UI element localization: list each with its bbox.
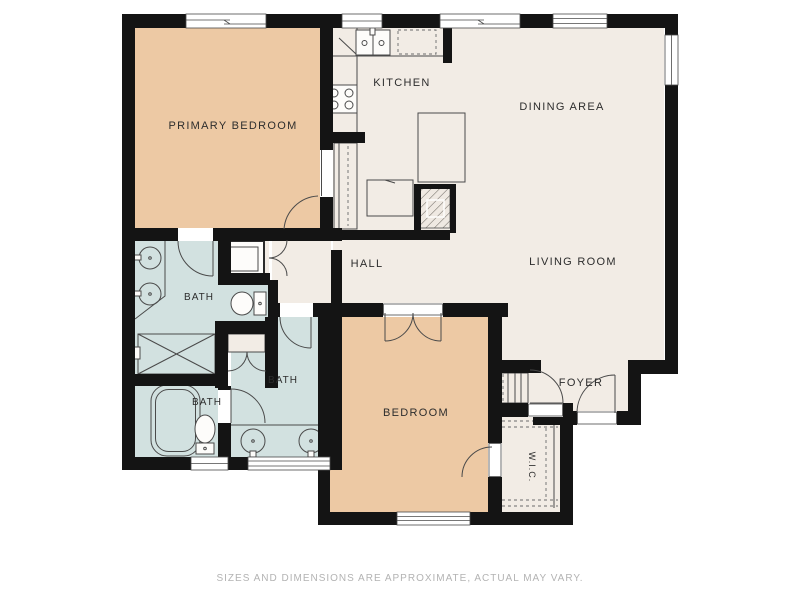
bath-small-label: BATH [192,397,222,408]
hall-label: HALL [351,258,384,270]
floor-plan-canvas: PRIMARY BEDROOM KITCHEN DINING AREA LIVI… [0,0,800,600]
window [248,457,330,470]
sink-tap [308,451,314,457]
wic-label: W.I.C. [527,452,537,483]
toilet [195,415,215,454]
dining-area-label: DINING AREA [519,101,604,113]
room-living-lower-floor [502,303,664,363]
toilet [231,292,266,315]
bath-primary-label: BATH [184,292,214,303]
kitchen-sink [356,27,390,55]
window [186,14,266,28]
room-bath-primary-floor [135,238,218,334]
window [665,35,678,85]
disclaimer-text: SIZES AND DIMENSIONS ARE APPROXIMATE, AC… [216,573,583,584]
sink-tap [134,291,141,296]
vestibule-floor [272,238,331,303]
window [342,14,382,28]
linen-closet-floor [228,334,265,352]
window [553,14,607,28]
primary-bedroom-label: PRIMARY BEDROOM [168,120,297,132]
foyer-label: FOYER [559,377,603,389]
bath-middle-label: BATH [268,375,298,386]
room-bath-middle-floor [231,352,330,457]
primary-bath-doorway [178,228,213,241]
bedroom-label: BEDROOM [383,407,449,419]
living-room-label: LIVING ROOM [529,256,617,268]
sink-tap [134,255,141,260]
middle-bath-doorway [280,303,313,317]
window [191,457,228,470]
window [397,512,470,525]
window [440,14,520,28]
floor-plan-page: PRIMARY BEDROOM KITCHEN DINING AREA LIVI… [0,0,800,600]
kitchen-label: KITCHEN [373,77,430,89]
water-heater-closet [420,188,450,228]
sink-tap [250,451,256,457]
